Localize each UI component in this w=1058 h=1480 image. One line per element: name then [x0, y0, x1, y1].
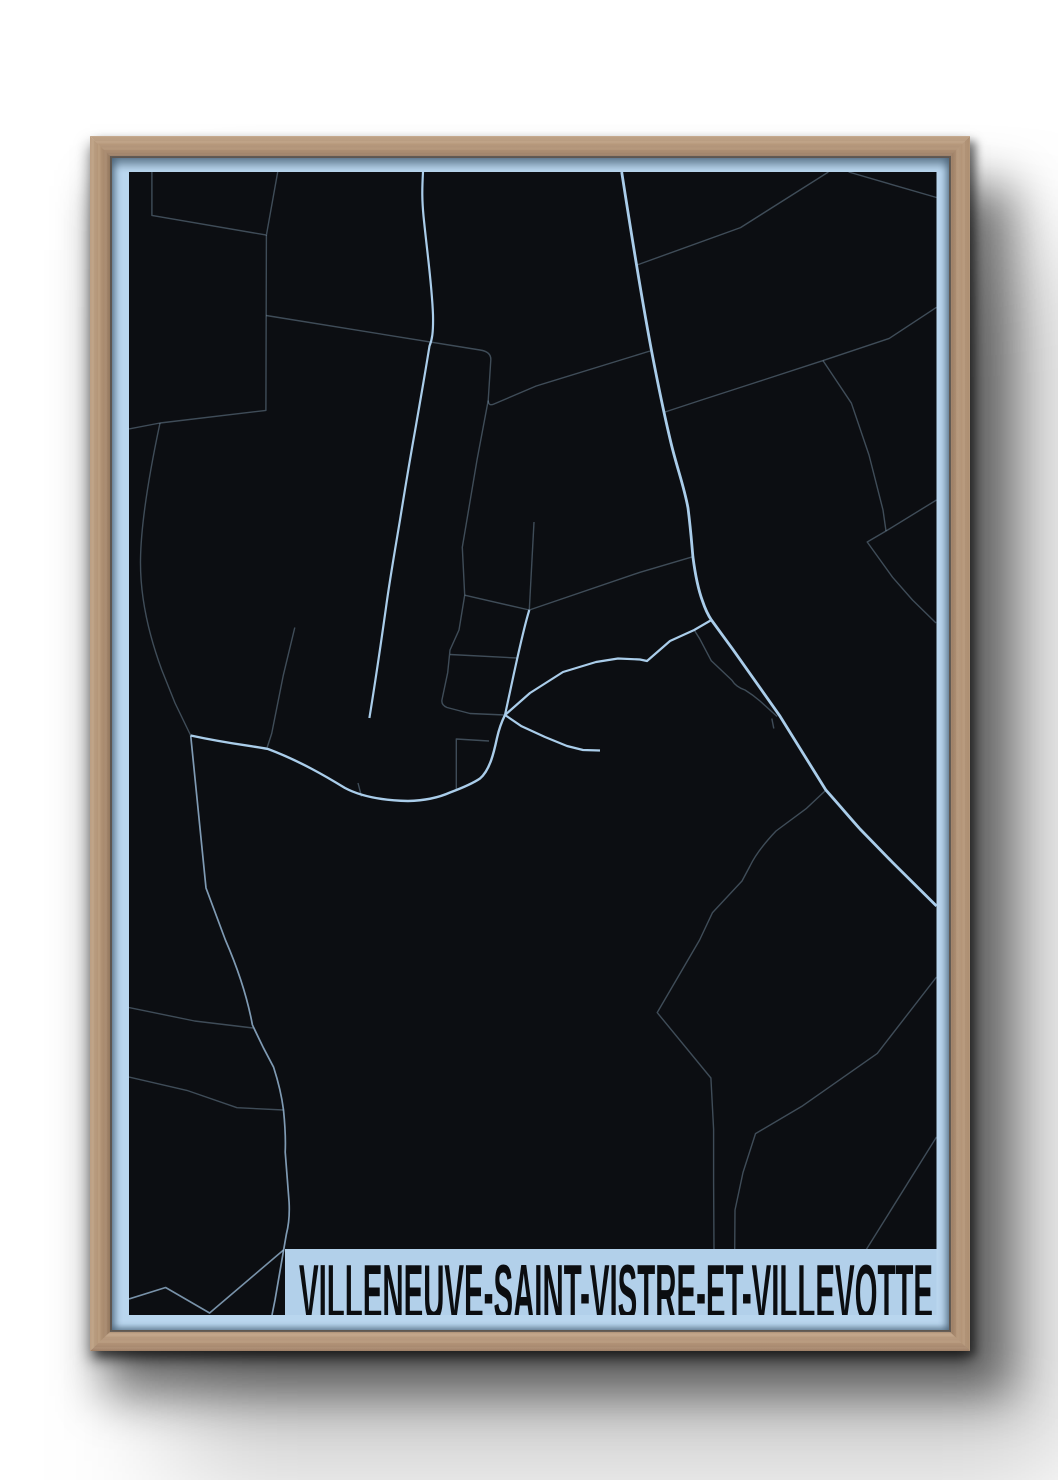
- svg-text:VILLENEUVE-SAINT-VISTRE-ET-VIL: VILLENEUVE-SAINT-VISTRE-ET-VILLEVOTTE: [299, 1248, 933, 1316]
